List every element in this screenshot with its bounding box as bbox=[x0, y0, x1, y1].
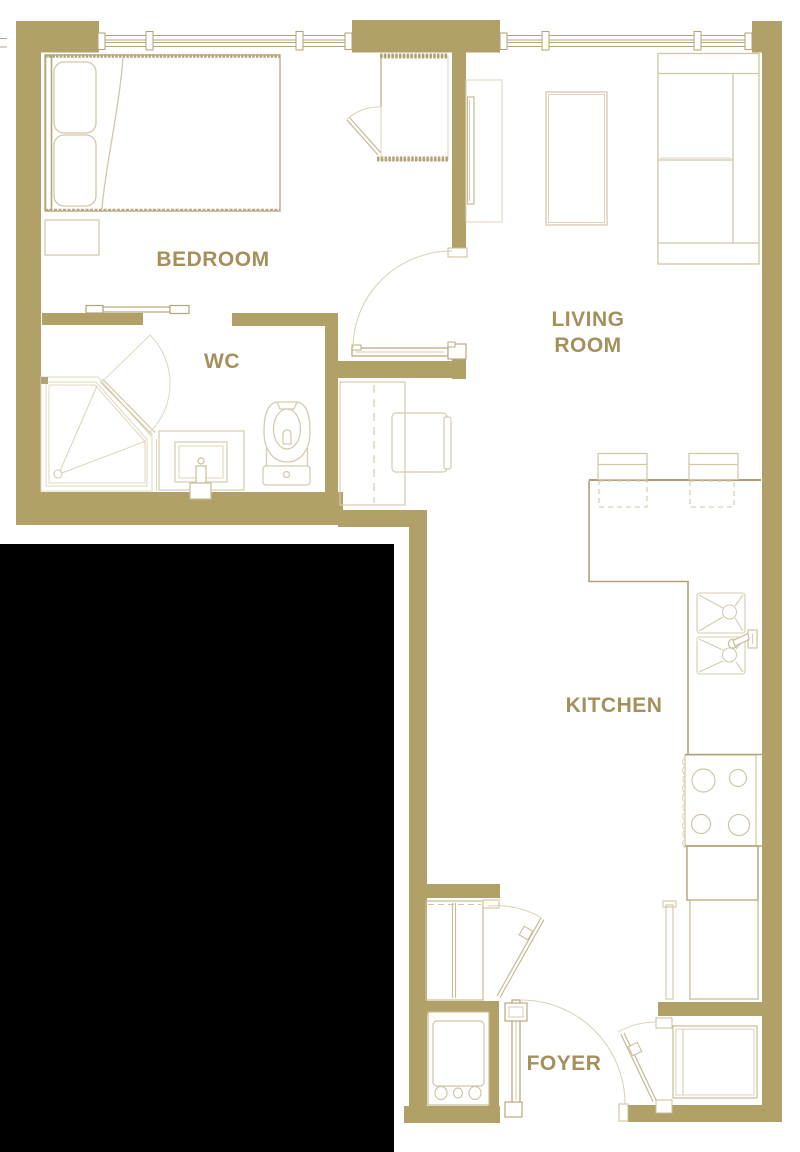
svg-text:FOYER: FOYER bbox=[527, 1052, 602, 1075]
svg-text:ROOM: ROOM bbox=[554, 334, 621, 357]
svg-text:WC: WC bbox=[204, 350, 240, 373]
svg-text:BEDROOM: BEDROOM bbox=[156, 248, 269, 271]
svg-text:LIVING: LIVING bbox=[551, 308, 624, 331]
svg-text:KITCHEN: KITCHEN bbox=[566, 694, 663, 717]
